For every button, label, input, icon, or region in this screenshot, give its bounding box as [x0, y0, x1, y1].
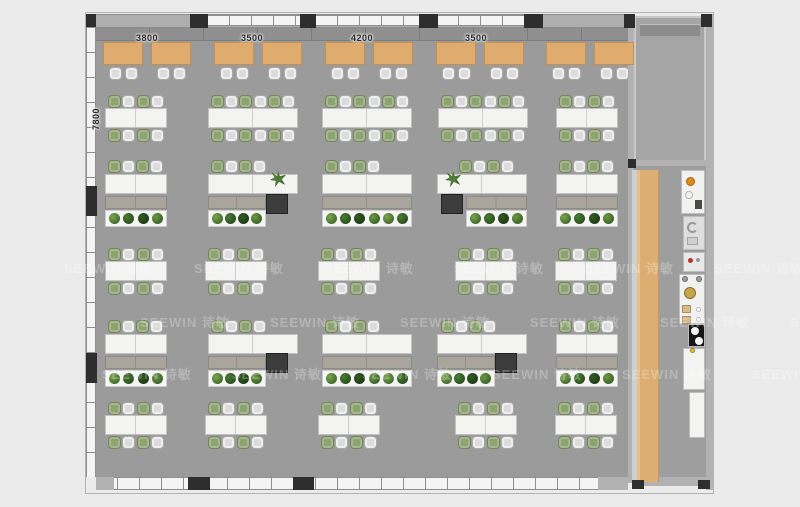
planter-plant — [467, 373, 478, 384]
watermark-text: SEEWIN 诗敏 — [584, 258, 674, 277]
chair — [364, 282, 377, 295]
chair — [484, 95, 497, 108]
chair — [122, 282, 135, 295]
bench-desk — [555, 415, 617, 435]
planter-plant — [589, 373, 600, 384]
structural-column — [632, 480, 644, 489]
basin-icon — [687, 222, 698, 233]
small-appliance — [683, 252, 705, 272]
chair — [512, 129, 525, 142]
chair — [353, 95, 366, 108]
watermark-text: SEEWIN 诗敏 — [714, 258, 800, 277]
chair — [321, 402, 334, 415]
warning-dot-icon — [690, 348, 695, 353]
chair — [573, 95, 586, 108]
top-window — [437, 15, 524, 26]
chair — [455, 95, 468, 108]
watermark-text: SEEWIN 诗敏 — [140, 312, 230, 331]
watermark-text: SEEWIN 诗敏 — [530, 312, 620, 331]
chair — [367, 320, 380, 333]
dimension-label-bay3: 4200 — [342, 33, 382, 43]
booth-table — [436, 42, 476, 65]
bench-desk — [438, 108, 528, 128]
chair — [559, 160, 572, 173]
structural-column — [188, 477, 210, 490]
chair — [558, 248, 571, 261]
structural-column — [190, 14, 208, 28]
chair — [321, 436, 334, 449]
burner-icon — [695, 337, 703, 345]
planter-plant — [326, 373, 337, 384]
chair — [469, 95, 482, 108]
credenza — [466, 196, 527, 209]
bottom-wall-segment — [96, 477, 114, 490]
planter-plant — [225, 213, 236, 224]
structural-column — [698, 480, 710, 489]
chair — [601, 436, 614, 449]
chair — [321, 282, 334, 295]
bottom-wall-segment — [598, 477, 628, 490]
cabinet — [689, 392, 705, 438]
left-window-wall — [86, 14, 96, 477]
booth-table — [325, 42, 365, 65]
planter-plant — [560, 213, 571, 224]
structural-column — [524, 14, 543, 28]
chair — [157, 67, 170, 80]
chair — [364, 436, 377, 449]
credenza — [556, 196, 618, 209]
chair — [395, 67, 408, 80]
chair — [339, 160, 352, 173]
chair — [339, 129, 352, 142]
chair — [487, 402, 500, 415]
chair — [108, 436, 121, 449]
right-outer-wall — [706, 14, 713, 490]
bench-desk — [318, 415, 380, 435]
chair — [125, 67, 138, 80]
watermark-text: SEEWIN 诗敏 — [622, 364, 712, 383]
chair — [251, 282, 264, 295]
chair — [237, 402, 250, 415]
bench-desk — [105, 108, 167, 128]
chair — [472, 436, 485, 449]
booth-table — [262, 42, 302, 65]
chair — [108, 282, 121, 295]
chair — [239, 95, 252, 108]
planter-plant — [512, 213, 523, 224]
chair — [501, 282, 514, 295]
structural-column — [701, 14, 712, 27]
chair — [587, 160, 600, 173]
vent-icon — [682, 276, 688, 282]
chair — [498, 129, 511, 142]
chair — [379, 67, 392, 80]
planter-plant — [212, 213, 223, 224]
structural-column — [419, 14, 438, 28]
chair — [573, 160, 586, 173]
manager-desk — [556, 174, 618, 194]
chair — [225, 160, 238, 173]
chair — [284, 67, 297, 80]
chair — [211, 160, 224, 173]
planter-plant — [251, 213, 262, 224]
chair — [472, 402, 485, 415]
chair — [469, 129, 482, 142]
structural-column — [86, 14, 96, 27]
chair — [211, 95, 224, 108]
planter-plant — [603, 213, 614, 224]
booth-table — [546, 42, 586, 65]
chair — [473, 160, 486, 173]
chair — [122, 436, 135, 449]
chair — [208, 436, 221, 449]
watermark-text: SEEWIN 诗敏 — [660, 312, 750, 331]
bench-desk — [455, 415, 517, 435]
chair — [108, 129, 121, 142]
chair — [151, 282, 164, 295]
bottom-window-wall — [96, 477, 628, 490]
power-dot-icon — [688, 258, 693, 263]
chair — [558, 282, 571, 295]
chair — [602, 129, 615, 142]
chair — [122, 320, 135, 333]
side-table — [266, 194, 288, 214]
chair — [501, 436, 514, 449]
chair — [572, 436, 585, 449]
chair — [601, 160, 614, 173]
planter-plant — [109, 213, 120, 224]
chair — [251, 436, 264, 449]
faucet-icon — [695, 200, 702, 209]
watermark-text: SEEWIN 诗敏 — [324, 258, 414, 277]
top-window — [316, 15, 419, 26]
manager-desk — [208, 334, 298, 354]
watermark-text: SEEWIN 诗敏 — [232, 364, 322, 383]
chair — [282, 95, 295, 108]
dial-icon — [685, 191, 693, 199]
knob-icon — [696, 258, 700, 262]
planter-plant — [383, 213, 394, 224]
watermark-text: SEEWIN 诗敏 — [64, 258, 154, 277]
planter-plant — [480, 373, 491, 384]
chair — [222, 282, 235, 295]
chair — [364, 402, 377, 415]
chair — [568, 67, 581, 80]
chair — [472, 282, 485, 295]
chair — [335, 402, 348, 415]
chair — [458, 402, 471, 415]
chair — [173, 67, 186, 80]
planter-plant — [152, 213, 163, 224]
planter-plant — [454, 373, 465, 384]
bench-desk — [322, 108, 412, 128]
chair — [459, 160, 472, 173]
booth-table — [214, 42, 254, 65]
chair — [122, 95, 135, 108]
watermark-text: SEEWIN 诗敏 — [194, 258, 284, 277]
watermark-text: SEEWIN 诗敏 — [362, 364, 452, 383]
vent-icon — [696, 276, 702, 282]
chair — [325, 160, 338, 173]
chair — [254, 95, 267, 108]
credenza — [208, 196, 266, 209]
chair — [501, 160, 514, 173]
chair — [122, 160, 135, 173]
chair — [122, 129, 135, 142]
structural-column — [624, 14, 635, 28]
chair — [353, 160, 366, 173]
chair — [602, 95, 615, 108]
structural-column — [86, 186, 97, 216]
credenza — [105, 196, 167, 209]
chair — [572, 282, 585, 295]
chair — [587, 402, 600, 415]
chair — [368, 129, 381, 142]
booth-table — [594, 42, 634, 65]
chair — [268, 67, 281, 80]
chair — [347, 67, 360, 80]
chair — [587, 282, 600, 295]
chair — [208, 402, 221, 415]
chair — [588, 129, 601, 142]
planter-plant — [326, 213, 337, 224]
chair — [211, 129, 224, 142]
chair — [396, 129, 409, 142]
chair — [601, 402, 614, 415]
chair — [558, 402, 571, 415]
top-window — [208, 15, 300, 26]
chair — [222, 436, 235, 449]
chair — [573, 129, 586, 142]
chair — [490, 67, 503, 80]
planter-plant — [212, 373, 223, 384]
chair — [506, 67, 519, 80]
planter-plant — [470, 213, 481, 224]
chair — [588, 95, 601, 108]
chair — [253, 320, 266, 333]
chair — [150, 160, 163, 173]
planter-plant — [589, 213, 600, 224]
planter-plant — [498, 213, 509, 224]
structural-column — [300, 14, 316, 28]
structural-column — [293, 477, 314, 490]
planter-plant — [484, 213, 495, 224]
chair — [151, 129, 164, 142]
chair — [268, 129, 281, 142]
manager-desk — [437, 334, 527, 354]
chair — [331, 67, 344, 80]
chair — [512, 95, 525, 108]
chair — [335, 282, 348, 295]
chair — [222, 402, 235, 415]
chair — [254, 129, 267, 142]
bench-desk — [105, 415, 167, 435]
planter-plant — [369, 213, 380, 224]
watermark-text: SEEWIN 诗敏 — [102, 364, 192, 383]
dimension-label-bay1: 3800 — [127, 33, 167, 43]
chair — [616, 67, 629, 80]
chair — [251, 402, 264, 415]
meeting-room-credenza — [640, 24, 700, 36]
manager-desk — [322, 334, 412, 354]
booth-table — [484, 42, 524, 65]
booth-table — [151, 42, 191, 65]
chair — [239, 129, 252, 142]
chair — [282, 129, 295, 142]
chair — [237, 282, 250, 295]
planter-plant — [397, 213, 408, 224]
bench-desk — [556, 108, 618, 128]
chair — [552, 67, 565, 80]
chair — [151, 436, 164, 449]
chair — [601, 282, 614, 295]
chair — [109, 67, 122, 80]
chair — [441, 129, 454, 142]
chair — [335, 436, 348, 449]
manager-desk — [105, 334, 167, 354]
chair — [353, 129, 366, 142]
chair — [137, 282, 150, 295]
chair — [396, 95, 409, 108]
planter-plant — [138, 213, 149, 224]
floor-plan-canvas: 3800 3500 4200 3500 7800 SEEWIN 诗敏SEEWIN… — [0, 0, 800, 507]
chair — [501, 402, 514, 415]
chair — [108, 402, 121, 415]
manager-desk — [556, 334, 618, 354]
planter-plant — [238, 213, 249, 224]
chair — [458, 436, 471, 449]
chair — [455, 129, 468, 142]
chair — [484, 129, 497, 142]
chair — [225, 129, 238, 142]
chair — [382, 95, 395, 108]
chair — [208, 282, 221, 295]
chair — [220, 67, 233, 80]
chair — [108, 95, 121, 108]
chair — [239, 320, 252, 333]
watermark-text: SEEWIN 诗敏 — [400, 312, 490, 331]
chair — [350, 436, 363, 449]
structural-column — [628, 159, 636, 168]
booth-table — [103, 42, 143, 65]
chair — [350, 282, 363, 295]
chair — [600, 67, 613, 80]
watermark-text: SEEWIN 诗敏 — [790, 312, 800, 331]
chair — [151, 402, 164, 415]
chair — [382, 129, 395, 142]
dimension-label-bay2: 3500 — [232, 33, 272, 43]
chair — [325, 95, 338, 108]
watermark-text: SEEWIN 诗敏 — [752, 364, 800, 383]
chair — [558, 436, 571, 449]
chair — [587, 436, 600, 449]
wood-runner — [637, 170, 659, 482]
chair — [151, 95, 164, 108]
chair — [442, 67, 455, 80]
chair — [122, 402, 135, 415]
chair — [236, 67, 249, 80]
chair — [368, 95, 381, 108]
chair — [367, 160, 380, 173]
credenza — [322, 196, 412, 209]
chair — [487, 436, 500, 449]
chair — [136, 160, 149, 173]
bench-desk — [208, 108, 298, 128]
drain-icon — [687, 237, 698, 245]
sink-bowl-icon — [686, 177, 695, 186]
chair — [458, 282, 471, 295]
chair — [572, 402, 585, 415]
chair — [237, 436, 250, 449]
chair — [268, 95, 281, 108]
chair — [487, 160, 500, 173]
dimension-label-bay4: 3500 — [456, 33, 496, 43]
side-table — [441, 194, 463, 214]
chair — [137, 129, 150, 142]
planter-plant — [603, 373, 614, 384]
chair — [559, 129, 572, 142]
chair — [325, 129, 338, 142]
manager-desk — [322, 174, 412, 194]
chair — [137, 436, 150, 449]
chair — [225, 95, 238, 108]
dimension-label-depth: 7800 — [91, 108, 101, 130]
chair — [487, 282, 500, 295]
chair — [137, 402, 150, 415]
chair — [108, 160, 121, 173]
watermark-text: SEEWIN 诗敏 — [492, 364, 582, 383]
manager-desk — [105, 174, 167, 194]
sink-gold-icon — [684, 287, 696, 299]
chair — [498, 95, 511, 108]
chair — [350, 402, 363, 415]
chair — [137, 95, 150, 108]
watermark-text: SEEWIN 诗敏 — [270, 312, 360, 331]
chair — [239, 160, 252, 173]
chair — [441, 95, 454, 108]
chair — [253, 160, 266, 173]
chair — [108, 320, 121, 333]
chair — [339, 95, 352, 108]
booth-table — [373, 42, 413, 65]
bench-desk — [205, 415, 267, 435]
chair — [458, 67, 471, 80]
meeting-room — [634, 16, 706, 162]
watermark-text: SEEWIN 诗敏 — [454, 258, 544, 277]
chair — [559, 95, 572, 108]
structural-column — [86, 353, 97, 383]
